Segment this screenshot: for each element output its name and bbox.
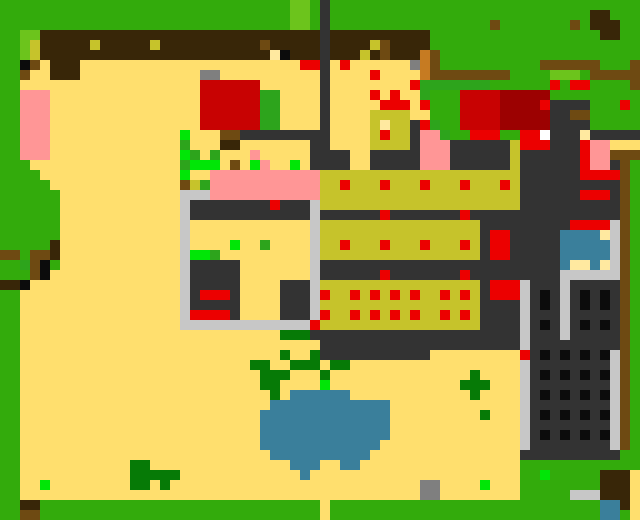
- tile-sand[interactable]: [410, 100, 420, 110]
- tile-black[interactable]: [580, 410, 590, 420]
- tile-pink-roof[interactable]: [20, 120, 50, 130]
- tile-red-item[interactable]: [520, 350, 530, 360]
- tile-stone-gray[interactable]: [420, 490, 440, 500]
- tile-sand[interactable]: [270, 360, 290, 370]
- tile-wood-brown[interactable]: [30, 260, 40, 270]
- tile-dark-soil[interactable]: [220, 140, 240, 150]
- tile-red-building[interactable]: [460, 90, 500, 100]
- tile-black[interactable]: [600, 320, 610, 330]
- tile-sand[interactable]: [40, 170, 180, 180]
- tile-dark-path[interactable]: [450, 140, 510, 150]
- tile-red-item[interactable]: [350, 310, 360, 320]
- tile-dark-path[interactable]: [410, 130, 420, 140]
- tile-dark-path[interactable]: [320, 40, 330, 50]
- tile-wall-light-gray[interactable]: [560, 280, 570, 290]
- tile-wall-light-gray[interactable]: [520, 290, 530, 300]
- tile-wall-light-gray[interactable]: [560, 270, 620, 280]
- tile-wood-brown[interactable]: [430, 50, 440, 60]
- tile-sand[interactable]: [280, 390, 290, 400]
- tile-sand[interactable]: [330, 110, 370, 120]
- tile-sand[interactable]: [630, 490, 640, 500]
- tile-sand[interactable]: [240, 260, 310, 270]
- tile-leaf-green[interactable]: [200, 180, 210, 190]
- tile-grass[interactable]: [0, 150, 20, 160]
- tile-dark-path[interactable]: [550, 100, 590, 110]
- tile-black[interactable]: [560, 410, 570, 420]
- tile-dark-path[interactable]: [280, 310, 310, 320]
- tile-sand[interactable]: [240, 160, 250, 170]
- tile-wood-brown[interactable]: [620, 210, 630, 220]
- tile-wall-light-gray[interactable]: [520, 340, 530, 350]
- tile-dark-foliage[interactable]: [290, 360, 320, 370]
- tile-sand[interactable]: [50, 100, 200, 110]
- tile-sand[interactable]: [20, 470, 130, 480]
- tile-wall-light-gray[interactable]: [610, 370, 620, 380]
- tile-sand[interactable]: [220, 250, 310, 260]
- tile-dark-path[interactable]: [450, 160, 510, 170]
- tile-grass[interactable]: [630, 380, 640, 390]
- tile-dark-path[interactable]: [320, 350, 430, 360]
- tile-grass[interactable]: [0, 440, 20, 450]
- tile-dark-path[interactable]: [550, 410, 560, 420]
- tile-red-item[interactable]: [380, 270, 390, 280]
- tile-grass[interactable]: [0, 170, 40, 180]
- tile-crop-bed[interactable]: [510, 180, 520, 190]
- tile-sand[interactable]: [50, 180, 180, 190]
- tile-dark-path[interactable]: [280, 280, 310, 290]
- tile-sand[interactable]: [20, 440, 260, 450]
- tile-grass[interactable]: [0, 0, 290, 10]
- tile-wall-light-gray[interactable]: [180, 300, 190, 310]
- tile-dark-foliage[interactable]: [320, 370, 330, 380]
- tile-red-item[interactable]: [460, 290, 470, 300]
- tile-white[interactable]: [540, 130, 550, 140]
- tile-grass[interactable]: [600, 60, 630, 70]
- tile-black[interactable]: [560, 430, 570, 440]
- tile-stone-gray[interactable]: [420, 480, 440, 490]
- tile-dark-path[interactable]: [530, 360, 610, 370]
- tile-sand[interactable]: [240, 280, 280, 290]
- tile-water-blue[interactable]: [300, 470, 310, 480]
- tile-crop-bed[interactable]: [420, 310, 440, 320]
- tile-grass[interactable]: [630, 370, 640, 380]
- tile-grass[interactable]: [330, 500, 600, 510]
- tile-leaf-green[interactable]: [180, 140, 190, 150]
- tile-dark-path[interactable]: [570, 300, 580, 310]
- tile-black[interactable]: [540, 370, 550, 380]
- tile-sand[interactable]: [20, 300, 180, 310]
- tile-grass[interactable]: [0, 60, 20, 70]
- tile-grass[interactable]: [0, 70, 20, 80]
- tile-black[interactable]: [560, 390, 570, 400]
- tile-sand[interactable]: [20, 80, 200, 90]
- tile-red-item[interactable]: [390, 90, 400, 100]
- tile-dark-path[interactable]: [530, 370, 540, 380]
- tile-crop-bed[interactable]: [470, 180, 500, 190]
- tile-wall-light-gray[interactable]: [560, 330, 570, 340]
- tile-red-item[interactable]: [570, 80, 590, 90]
- tile-dark-path[interactable]: [230, 290, 240, 300]
- tile-wood-brown[interactable]: [620, 240, 630, 250]
- tile-sand[interactable]: [330, 100, 380, 110]
- tile-red-item[interactable]: [380, 180, 390, 190]
- tile-leaf-green[interactable]: [180, 160, 190, 170]
- tile-crop-bed[interactable]: [320, 190, 520, 200]
- tile-grass[interactable]: [0, 220, 60, 230]
- tile-sand[interactable]: [350, 360, 520, 370]
- tile-grass[interactable]: [630, 400, 640, 410]
- tile-wall-light-gray[interactable]: [520, 320, 530, 330]
- tile-dark-path[interactable]: [610, 300, 620, 310]
- tile-grass[interactable]: [0, 190, 60, 200]
- tile-wall-light-gray[interactable]: [610, 220, 620, 230]
- tile-red-item[interactable]: [310, 320, 320, 330]
- tile-grass[interactable]: [0, 480, 20, 490]
- tile-red-item[interactable]: [490, 280, 520, 290]
- tile-dark-path[interactable]: [480, 220, 570, 230]
- tile-dark-soil[interactable]: [160, 40, 260, 50]
- tile-dark-soil[interactable]: [40, 50, 270, 60]
- tile-dark-foliage[interactable]: [130, 480, 150, 490]
- tile-sand[interactable]: [60, 250, 180, 260]
- tile-wood-brown[interactable]: [0, 250, 20, 260]
- tile-dark-soil[interactable]: [330, 40, 370, 50]
- tile-leaf-green[interactable]: [260, 100, 280, 110]
- tile-dark-path[interactable]: [480, 300, 520, 310]
- tile-crop-bed[interactable]: [470, 240, 480, 250]
- tile-grass[interactable]: [0, 490, 20, 500]
- tile-sand[interactable]: [20, 410, 260, 420]
- tile-stone-gray[interactable]: [410, 60, 420, 70]
- tile-black[interactable]: [540, 350, 550, 360]
- tile-sand[interactable]: [20, 340, 320, 350]
- tile-sand[interactable]: [190, 220, 310, 230]
- tile-red-item[interactable]: [580, 190, 610, 200]
- tile-dark-path[interactable]: [370, 160, 420, 170]
- tile-red-item[interactable]: [520, 140, 550, 150]
- tile-sand[interactable]: [280, 380, 320, 390]
- tile-grass[interactable]: [630, 440, 640, 450]
- tile-dark-path[interactable]: [590, 430, 600, 440]
- tile-dark-path[interactable]: [320, 340, 520, 350]
- tile-dark-path[interactable]: [510, 230, 560, 240]
- tile-sand[interactable]: [490, 480, 520, 490]
- tile-crop-bed[interactable]: [360, 50, 370, 60]
- tile-grass[interactable]: [0, 30, 20, 40]
- tile-grass[interactable]: [310, 0, 320, 10]
- tile-dark-path[interactable]: [410, 140, 420, 150]
- tile-grass[interactable]: [0, 110, 20, 120]
- tile-crop-bed[interactable]: [30, 50, 40, 60]
- tile-black[interactable]: [580, 350, 590, 360]
- tile-dark-path[interactable]: [530, 400, 610, 410]
- tile-pink-roof[interactable]: [420, 140, 450, 150]
- tile-dark-path[interactable]: [280, 290, 310, 300]
- tile-crop-bed[interactable]: [320, 230, 480, 240]
- tile-grass[interactable]: [0, 450, 20, 460]
- tile-crop-bed[interactable]: [330, 310, 350, 320]
- tile-black[interactable]: [540, 290, 550, 300]
- tile-wood-brown[interactable]: [430, 70, 510, 80]
- tile-grass[interactable]: [630, 230, 640, 240]
- tile-pink-roof[interactable]: [420, 130, 440, 140]
- tile-light-grass[interactable]: [20, 40, 30, 50]
- tile-water-blue[interactable]: [270, 450, 370, 460]
- tile-sand[interactable]: [50, 90, 200, 100]
- tile-dark-path[interactable]: [390, 270, 460, 280]
- tile-stone-gray[interactable]: [200, 70, 220, 80]
- tile-dark-path[interactable]: [590, 350, 600, 360]
- tile-sand[interactable]: [390, 410, 480, 420]
- tile-wood-brown[interactable]: [180, 180, 190, 190]
- tile-wood-brown[interactable]: [620, 320, 630, 330]
- tile-red-item[interactable]: [540, 100, 550, 110]
- tile-dark-soil[interactable]: [50, 250, 60, 260]
- tile-red-item[interactable]: [390, 310, 400, 320]
- tile-dark-soil[interactable]: [590, 20, 620, 30]
- tile-dark-foliage[interactable]: [280, 330, 310, 340]
- tile-wall-light-gray[interactable]: [310, 300, 320, 310]
- tile-red-item[interactable]: [410, 310, 420, 320]
- tile-dark-path[interactable]: [610, 290, 620, 300]
- tile-pink-roof[interactable]: [420, 160, 450, 170]
- tile-red-item[interactable]: [190, 310, 230, 320]
- tile-black[interactable]: [540, 410, 550, 420]
- tile-sand[interactable]: [630, 510, 640, 520]
- tile-grass[interactable]: [550, 90, 640, 100]
- tile-water-blue[interactable]: [600, 510, 620, 520]
- tile-crop-bed[interactable]: [510, 140, 520, 150]
- tile-sand[interactable]: [240, 290, 280, 300]
- tile-dark-soil[interactable]: [40, 40, 90, 50]
- tile-red-building[interactable]: [200, 90, 260, 100]
- tile-red-item[interactable]: [420, 180, 430, 190]
- tile-sand[interactable]: [150, 460, 290, 470]
- tile-wood-brown[interactable]: [620, 410, 630, 420]
- tile-dark-path[interactable]: [190, 270, 240, 280]
- tile-sand[interactable]: [190, 230, 310, 240]
- tile-wall-light-gray[interactable]: [310, 310, 320, 320]
- tile-dark-soil[interactable]: [100, 40, 150, 50]
- tile-black[interactable]: [580, 320, 590, 330]
- tile-sand[interactable]: [270, 240, 310, 250]
- tile-crop-bed[interactable]: [390, 130, 410, 140]
- tile-wood-brown[interactable]: [610, 150, 640, 160]
- tile-sand[interactable]: [410, 110, 430, 120]
- tile-crop-bed[interactable]: [90, 40, 100, 50]
- tile-sand[interactable]: [30, 280, 180, 290]
- tile-wall-light-gray[interactable]: [610, 440, 620, 450]
- tile-pink-roof[interactable]: [20, 150, 50, 160]
- tile-wall-light-gray[interactable]: [520, 280, 530, 290]
- tile-wood-brown[interactable]: [620, 310, 630, 320]
- tile-grass[interactable]: [0, 160, 30, 170]
- tile-wall-light-gray[interactable]: [310, 270, 320, 280]
- tile-wall-light-gray[interactable]: [520, 370, 530, 380]
- tile-grass[interactable]: [0, 360, 20, 370]
- tile-black[interactable]: [20, 60, 30, 70]
- tile-dark-path[interactable]: [570, 350, 580, 360]
- tile-water-blue[interactable]: [560, 260, 570, 270]
- tile-grass[interactable]: [500, 20, 570, 30]
- tile-crop-bed[interactable]: [370, 110, 410, 120]
- tile-crop-bed[interactable]: [470, 310, 480, 320]
- tile-grass[interactable]: [490, 80, 550, 90]
- tile-grass[interactable]: [630, 280, 640, 290]
- tile-grass[interactable]: [430, 110, 460, 120]
- tile-black[interactable]: [600, 390, 610, 400]
- tile-red-item[interactable]: [580, 140, 590, 150]
- tile-sand[interactable]: [240, 140, 310, 150]
- tile-pink-roof[interactable]: [20, 110, 50, 120]
- tile-dark-path[interactable]: [190, 210, 310, 220]
- tile-dark-path[interactable]: [320, 120, 330, 130]
- tile-pink-roof[interactable]: [260, 160, 270, 170]
- tile-dark-path[interactable]: [530, 380, 610, 390]
- tile-dark-path[interactable]: [590, 300, 600, 310]
- tile-grass[interactable]: [0, 90, 20, 100]
- tile-dark-path[interactable]: [320, 90, 330, 100]
- tile-dark-soil[interactable]: [290, 50, 320, 60]
- tile-grass[interactable]: [630, 250, 640, 260]
- tile-sand[interactable]: [440, 480, 480, 490]
- tile-dark-path[interactable]: [190, 290, 200, 300]
- tile-dark-foliage[interactable]: [250, 360, 270, 370]
- tile-crop-bed[interactable]: [430, 180, 460, 190]
- tile-red-item[interactable]: [350, 290, 360, 300]
- tile-dark-path[interactable]: [320, 270, 380, 280]
- tile-light-grass[interactable]: [290, 20, 310, 30]
- tile-red-item[interactable]: [490, 250, 510, 260]
- tile-sand[interactable]: [240, 300, 280, 310]
- tile-red-building[interactable]: [460, 120, 500, 130]
- tile-dark-path[interactable]: [520, 200, 620, 210]
- tile-wood-brown[interactable]: [620, 160, 630, 170]
- tile-sand[interactable]: [270, 160, 290, 170]
- tile-sand[interactable]: [430, 350, 520, 360]
- tile-pink-roof[interactable]: [210, 180, 320, 190]
- tile-sand[interactable]: [490, 410, 520, 420]
- tile-grass[interactable]: [520, 470, 540, 480]
- tile-water-blue[interactable]: [290, 460, 320, 470]
- tile-grass[interactable]: [560, 80, 570, 90]
- tile-sand[interactable]: [20, 480, 40, 490]
- tile-dark-soil[interactable]: [620, 500, 630, 510]
- tile-sand[interactable]: [440, 490, 520, 500]
- tile-dark-path[interactable]: [320, 20, 330, 30]
- tile-sand[interactable]: [630, 470, 640, 480]
- tile-dark-path[interactable]: [550, 390, 560, 400]
- tile-sand[interactable]: [390, 430, 520, 440]
- tile-black[interactable]: [580, 300, 590, 310]
- tile-dark-path[interactable]: [190, 300, 240, 310]
- tile-dark-path[interactable]: [240, 130, 330, 140]
- tile-crop-bed[interactable]: [320, 250, 480, 260]
- tile-wood-brown[interactable]: [620, 370, 630, 380]
- tile-wood-brown[interactable]: [620, 270, 630, 280]
- tile-light-grass[interactable]: [20, 30, 40, 40]
- tile-dark-path[interactable]: [590, 370, 600, 380]
- tile-pale-yellow[interactable]: [580, 130, 590, 140]
- tile-pale-yellow[interactable]: [600, 230, 610, 240]
- tile-crop-bed[interactable]: [330, 290, 350, 300]
- tile-sand[interactable]: [170, 480, 420, 490]
- tile-sand[interactable]: [190, 140, 220, 150]
- tile-dark-path[interactable]: [310, 160, 350, 170]
- tile-wall-light-gray[interactable]: [180, 280, 190, 290]
- tile-dark-path[interactable]: [310, 330, 520, 340]
- tile-grass[interactable]: [330, 10, 590, 20]
- tile-crop-bed[interactable]: [510, 160, 520, 170]
- tile-sand[interactable]: [390, 420, 520, 430]
- tile-dark-path[interactable]: [480, 240, 490, 250]
- tile-bright-plant[interactable]: [190, 250, 210, 260]
- tile-dark-path[interactable]: [570, 390, 580, 400]
- tile-sand[interactable]: [20, 290, 180, 300]
- tile-wood-brown[interactable]: [620, 250, 630, 260]
- tile-leaf-green[interactable]: [260, 90, 280, 100]
- tile-pink-roof[interactable]: [20, 90, 50, 100]
- tile-red-item[interactable]: [320, 310, 330, 320]
- tile-red-item[interactable]: [320, 290, 330, 300]
- tile-grass[interactable]: [0, 470, 20, 480]
- tile-grass[interactable]: [0, 140, 20, 150]
- tile-sand[interactable]: [60, 210, 180, 220]
- tile-wall-light-gray[interactable]: [310, 240, 320, 250]
- tile-sand[interactable]: [150, 480, 160, 490]
- tile-red-item[interactable]: [460, 310, 470, 320]
- tile-wall-light-gray[interactable]: [180, 230, 190, 240]
- tile-grass[interactable]: [630, 390, 640, 400]
- tile-wall-light-gray[interactable]: [310, 200, 320, 210]
- tile-dark-path[interactable]: [520, 450, 620, 460]
- tile-dark-path[interactable]: [520, 170, 580, 180]
- tile-crop-bed[interactable]: [190, 180, 200, 190]
- tile-sand[interactable]: [630, 500, 640, 510]
- tile-pink-roof[interactable]: [590, 160, 610, 170]
- tile-sand[interactable]: [50, 140, 180, 150]
- tile-grass[interactable]: [630, 330, 640, 340]
- tile-pale-yellow[interactable]: [270, 50, 280, 60]
- tile-dark-path[interactable]: [530, 290, 540, 300]
- tile-grass[interactable]: [0, 390, 20, 400]
- tile-pink-roof[interactable]: [210, 170, 320, 180]
- tile-grass[interactable]: [630, 220, 640, 230]
- tile-wall-light-gray[interactable]: [520, 430, 530, 440]
- tile-red-item[interactable]: [620, 100, 630, 110]
- tile-dark-red-building[interactable]: [500, 100, 540, 110]
- tile-red-building[interactable]: [200, 120, 260, 130]
- tile-dark-foliage[interactable]: [160, 480, 170, 490]
- tile-dark-foliage[interactable]: [260, 380, 280, 390]
- tile-dark-path[interactable]: [320, 60, 330, 70]
- tile-dark-path[interactable]: [190, 260, 240, 270]
- tile-red-item[interactable]: [460, 270, 470, 280]
- tile-pink-roof[interactable]: [20, 140, 50, 150]
- tile-dark-path[interactable]: [550, 140, 580, 150]
- tile-crop-bed[interactable]: [320, 240, 340, 250]
- tile-dark-path[interactable]: [530, 310, 560, 320]
- tile-wall-light-gray[interactable]: [310, 250, 320, 260]
- tile-black[interactable]: [600, 430, 610, 440]
- tile-bright-plant[interactable]: [190, 160, 220, 170]
- tile-bright-plant[interactable]: [180, 150, 190, 160]
- tile-grass[interactable]: [0, 130, 20, 140]
- tile-dark-path[interactable]: [280, 200, 310, 210]
- tile-dark-path[interactable]: [550, 320, 560, 330]
- tile-water-blue[interactable]: [340, 460, 360, 470]
- tile-red-item[interactable]: [340, 180, 350, 190]
